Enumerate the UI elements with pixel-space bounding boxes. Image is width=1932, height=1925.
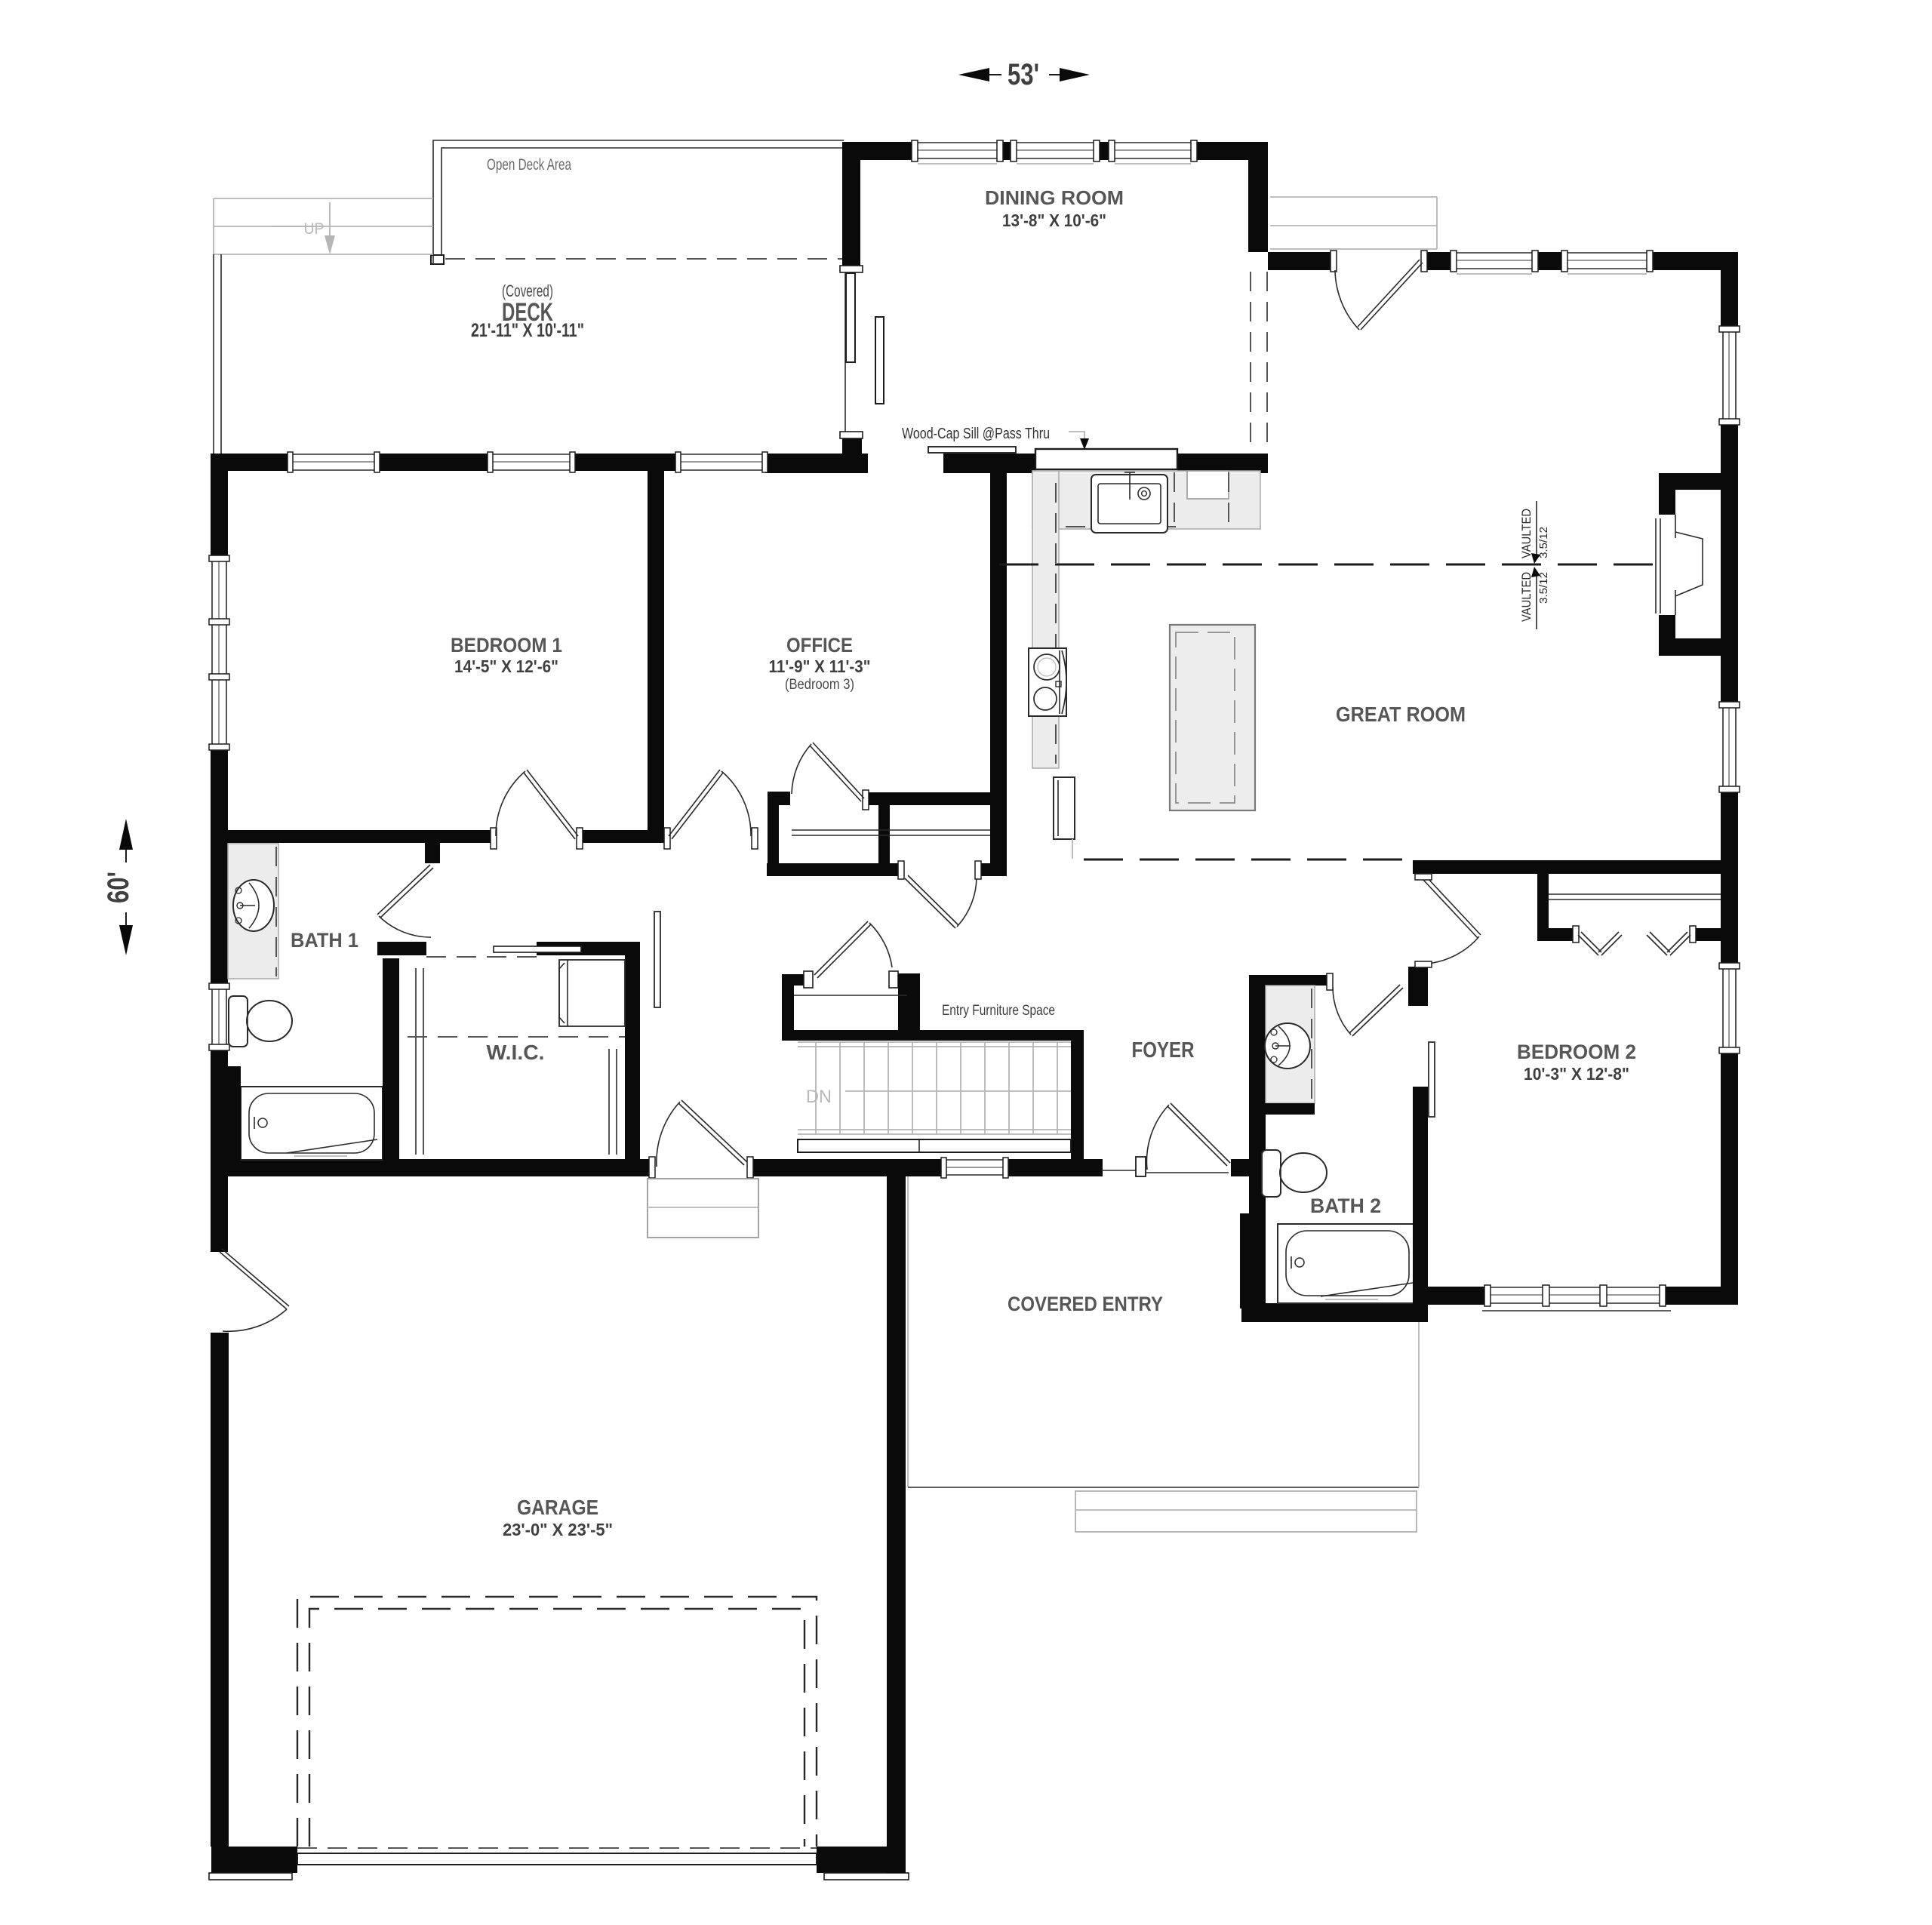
svg-text:11'-9" X 11'-3": 11'-9" X 11'-3" bbox=[769, 657, 871, 676]
svg-text:3.5/12: 3.5/12 bbox=[1537, 572, 1550, 604]
svg-text:14'-5" X 12'-6": 14'-5" X 12'-6" bbox=[454, 657, 558, 676]
svg-text:10'-3" X 12'-8": 10'-3" X 12'-8" bbox=[1524, 1064, 1629, 1084]
svg-text:23'-0" X 23'-5": 23'-0" X 23'-5" bbox=[503, 1520, 613, 1539]
svg-text:13'-8" X 10'-6": 13'-8" X 10'-6" bbox=[1002, 211, 1106, 230]
svg-text:DINING ROOM: DINING ROOM bbox=[985, 186, 1124, 209]
svg-text:GARAGE: GARAGE bbox=[517, 1496, 598, 1519]
svg-text:FOYER: FOYER bbox=[1132, 1038, 1195, 1062]
svg-text:60': 60' bbox=[102, 872, 135, 903]
svg-text:VAULTED: VAULTED bbox=[1519, 509, 1534, 558]
svg-text:GREAT ROOM: GREAT ROOM bbox=[1336, 703, 1466, 726]
svg-text:21'-11" X 10'-11": 21'-11" X 10'-11" bbox=[471, 320, 584, 341]
svg-text:Entry Furniture Space: Entry Furniture Space bbox=[942, 1003, 1055, 1019]
svg-text:W.I.C.: W.I.C. bbox=[487, 1041, 545, 1064]
svg-text:BEDROOM 2: BEDROOM 2 bbox=[1517, 1041, 1636, 1063]
svg-text:COVERED ENTRY: COVERED ENTRY bbox=[1008, 1293, 1163, 1315]
svg-text:53': 53' bbox=[1008, 58, 1039, 91]
svg-text:3.5/12: 3.5/12 bbox=[1537, 527, 1550, 558]
svg-text:BEDROOM 1: BEDROOM 1 bbox=[451, 634, 562, 657]
svg-text:BATH 1: BATH 1 bbox=[291, 929, 358, 952]
svg-text:VAULTED: VAULTED bbox=[1519, 572, 1534, 622]
svg-text:OFFICE: OFFICE bbox=[786, 634, 853, 657]
svg-text:Open Deck Area: Open Deck Area bbox=[487, 156, 571, 174]
svg-text:UP: UP bbox=[304, 220, 325, 238]
svg-text:BATH 2: BATH 2 bbox=[1310, 1195, 1381, 1217]
svg-text:DN: DN bbox=[806, 1087, 832, 1107]
svg-text:Wood-Cap Sill @Pass Thru: Wood-Cap Sill @Pass Thru bbox=[902, 426, 1050, 442]
svg-text:(Bedroom 3): (Bedroom 3) bbox=[785, 677, 854, 693]
